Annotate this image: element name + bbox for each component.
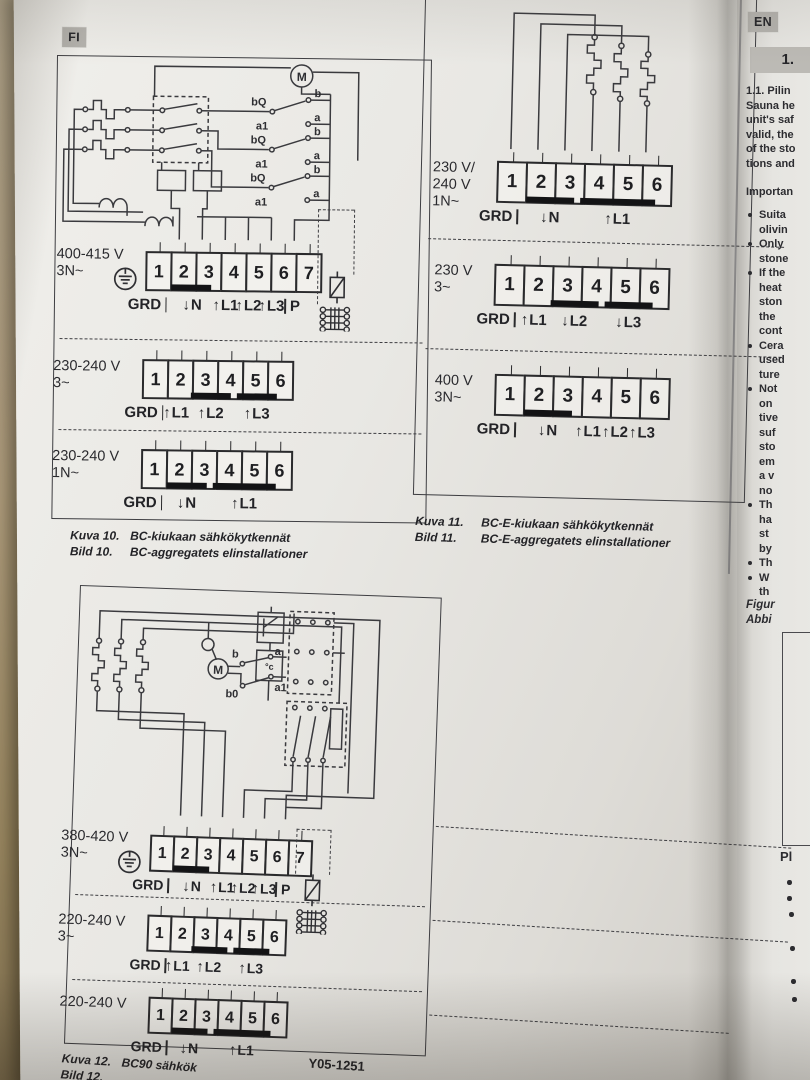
row-separator-dashed [72, 979, 422, 992]
clipped-text-line: used [759, 353, 810, 368]
terminal-bridge [171, 1027, 207, 1034]
photo-of-manual-page: FI [0, 0, 810, 1080]
terminal-7: 7 [287, 839, 313, 877]
arrow-up-icon: ↑ [251, 880, 259, 897]
terminal-bridge [233, 948, 269, 955]
clipped-text-line: heat [759, 281, 810, 296]
bullet-item: Wth [746, 571, 810, 600]
clipped-text-line: the [759, 310, 810, 325]
bullet-dot [789, 912, 794, 917]
contact-label: a1 [274, 682, 287, 694]
clipped-text-line: st [759, 527, 810, 542]
arrow-up-icon: ↑ [196, 958, 204, 975]
terminal-bridge [191, 946, 227, 953]
dashed-wire [433, 920, 788, 943]
dashed-wire [329, 830, 332, 875]
wire-label-GRD: GRD [132, 876, 169, 893]
bullet-dot [748, 576, 752, 580]
section-heading-bar: 1. [750, 47, 810, 73]
clipped-text-line: stone [759, 252, 810, 267]
wire-label-text: GRD [129, 956, 161, 973]
connector-icon [293, 908, 330, 935]
wire-label-P: P [275, 881, 290, 898]
right-page-column: EN 1. 1.1. PilinSauna heunit's safvalid,… [744, 0, 810, 1080]
clipped-text-line: suf [759, 426, 810, 441]
arrow-down-icon: ↓ [179, 1040, 187, 1057]
bullet-item: Suitaolivin [746, 208, 810, 237]
clipped-text-line: Only [759, 237, 810, 252]
wire-label-text: P [281, 881, 291, 897]
drawing-part-number: Y05-1251 [308, 1056, 365, 1074]
figure-image-frame [782, 632, 810, 846]
clipped-text-line: tions and [746, 157, 810, 172]
clipped-text-line: no [759, 484, 810, 499]
bullet-item: Cerausedture [746, 339, 810, 383]
bullet-dot [748, 387, 752, 391]
clipped-text-line: Cera [759, 339, 810, 354]
bullet-item: Thhastby [746, 498, 810, 556]
bullet-dot [787, 880, 792, 885]
wire-label-GRD: GRD [130, 1038, 167, 1055]
clipped-text-line: ston [759, 295, 810, 310]
bc90-diagram-section: b a b0 a1 °c M 380-420 V3N~1234567GRD↓N↑… [0, 0, 810, 1080]
clipped-text-line: cont [759, 324, 810, 339]
clipped-text-line: on [759, 397, 810, 412]
wire-label-L2: ↑L2 [196, 958, 221, 976]
figure-caption-line: Abbi [746, 613, 775, 628]
bullet-dot [748, 271, 752, 275]
clipped-text-line: ha [759, 513, 810, 528]
clipped-text-line: Th [759, 498, 810, 513]
wire-label-text: L2 [205, 959, 222, 976]
wire-label-GRD: GRD [129, 956, 166, 973]
relay-icon [302, 874, 323, 907]
bullet-dot [748, 242, 752, 246]
wire-label-text: GRD [132, 876, 164, 893]
figure-caption-kuva12: Kuva 12.BC90 sähkökBild 12. [60, 1051, 197, 1080]
bullet-item: Notontivesufstoema vno [746, 382, 810, 498]
clipped-text-line: Th [759, 556, 810, 571]
figure-caption-line: Figur [746, 598, 775, 613]
terminal-row-380-420v: 380-420 V3N~1234567GRD↓N↑L1↑L2↑L3P [149, 835, 313, 878]
wire-label-L1: ↑L1 [165, 957, 190, 975]
contact-label: a [275, 646, 282, 658]
voltage-label: 220-240 V3~ [57, 911, 125, 947]
wire-label-text: L3 [247, 960, 264, 977]
bullet-item: If theheatstonthecont [746, 266, 810, 339]
clipped-text-line: W [759, 571, 810, 586]
wire-label-N: ↓N [179, 1040, 198, 1058]
bullet-dot [748, 561, 752, 565]
important-label: Importan [746, 186, 793, 198]
intro-paragraph: 1.1. PilinSauna heunit's safvalid, theof… [746, 84, 810, 171]
bullet-list: SuitaolivinOnlystoneIf theheatstonthecon… [746, 208, 810, 600]
bullet-dot [787, 896, 792, 901]
bullet-dot [792, 997, 797, 1002]
wire-label-text: N [188, 1040, 199, 1056]
note-heading: Pl [780, 849, 792, 864]
bc90-schematic-drawing: b a b0 a1 °c M [75, 588, 437, 826]
clipped-text-line: tive [759, 411, 810, 426]
motor-label: M [213, 663, 223, 677]
voltage-label: 220-240 V [59, 994, 126, 1013]
arrow-down-icon: ↓ [182, 878, 190, 895]
clipped-text-line: of the sto [746, 142, 810, 157]
bullet-dot [791, 979, 796, 984]
wire-label-L1: ↑L1 [229, 1041, 254, 1059]
clipped-text-line: Sauna he [746, 99, 810, 114]
contact-label: b0 [225, 688, 238, 700]
clipped-text-line: Suita [759, 208, 810, 223]
clipped-text-line: If the [759, 266, 810, 281]
clipped-text-line: by [759, 542, 810, 557]
clipped-text-line: sto [759, 440, 810, 455]
voltage-label: 380-420 V3N~ [60, 828, 128, 864]
terminal-bridge [173, 865, 209, 872]
clipped-text-line: valid, the [746, 128, 810, 143]
dashed-wire [429, 1015, 729, 1034]
arrow-up-icon: ↑ [238, 960, 246, 977]
arrow-up-icon: ↑ [165, 957, 173, 974]
wire-label-L3: ↑L3 [238, 960, 263, 978]
wire-label-text: L3 [260, 880, 277, 897]
clipped-text-line: unit's saf [746, 113, 810, 128]
bullet-item: Onlystone [746, 237, 810, 266]
wire-label-N: ↓N [182, 878, 201, 896]
arrow-up-icon: ↑ [230, 879, 238, 896]
clipped-text-line: olivin [759, 223, 810, 238]
thermostat-label: °c [265, 662, 274, 672]
wire-label-text: L1 [173, 957, 190, 974]
contact-label: b [232, 648, 239, 660]
terminal-row-220-240v-1n: 220-240 V123456GRD↓N↑L1 [147, 997, 288, 1039]
wire-label-text: L1 [237, 1042, 254, 1059]
bullet-dot [790, 946, 795, 951]
language-badge-en: EN [748, 12, 778, 32]
wire-label-L3: ↑L3 [251, 880, 276, 898]
wire-label-text: GRD [130, 1038, 162, 1055]
bullet-dot [748, 213, 752, 217]
bullet-item: Th [746, 556, 810, 571]
clipped-text-line: 1.1. Pilin [746, 84, 810, 99]
clipped-text-line: Not [759, 382, 810, 397]
figure-caption-clipped: Figur Abbi [746, 598, 775, 628]
dashed-wire [436, 826, 791, 849]
clipped-text-line: a v [759, 469, 810, 484]
bullet-dot [748, 344, 752, 348]
bc90-wiring-frame: b a b0 a1 °c M 380-420 V3N~1234567GRD↓N↑… [64, 585, 442, 1056]
arrow-up-icon: ↑ [209, 879, 217, 896]
bullet-dot [748, 503, 752, 507]
terminal-row-220-240v-3ph: 220-240 V3~123456GRD↑L1↑L2↑L3 [146, 915, 287, 957]
clipped-text-line: ture [759, 368, 810, 383]
arrow-up-icon: ↑ [229, 1041, 237, 1058]
wire-label-text: N [191, 878, 202, 894]
clipped-text-line: em [759, 455, 810, 470]
